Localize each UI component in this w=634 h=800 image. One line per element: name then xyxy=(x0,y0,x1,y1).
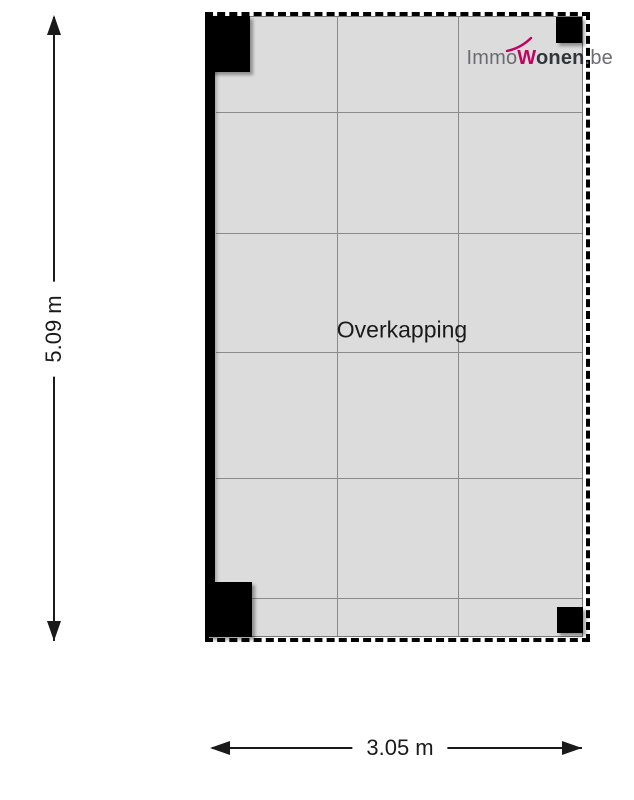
grid-line xyxy=(216,233,582,234)
arrow-right-icon xyxy=(562,741,582,755)
dimension-label-width: 3.05 m xyxy=(352,733,447,763)
logo-middle: onen xyxy=(536,47,585,69)
arrow-up-icon xyxy=(47,15,61,35)
pillar-bottom-right xyxy=(557,607,583,633)
floorplan-page: Overkapping 5.09 m 3.05 m ImmoWonen.be xyxy=(0,0,634,800)
dimension-label-height: 5.09 m xyxy=(35,281,73,376)
logo-suffix: .be xyxy=(585,47,613,69)
pillar-bottom-left xyxy=(205,582,252,637)
grid-line xyxy=(216,598,582,599)
logo: ImmoWonen.be xyxy=(466,47,613,70)
room-label: Overkapping xyxy=(337,317,467,344)
grid-line xyxy=(216,352,582,353)
wall-left xyxy=(205,16,215,637)
arrow-left-icon xyxy=(210,741,230,755)
grid-line xyxy=(216,478,582,479)
logo-swoosh-icon xyxy=(505,36,533,52)
pillar-top-left xyxy=(205,16,250,72)
logo-accent-letter: W xyxy=(517,47,536,69)
pillar-top-right xyxy=(556,17,582,43)
grid-line xyxy=(216,112,582,113)
arrow-down-icon xyxy=(47,621,61,641)
